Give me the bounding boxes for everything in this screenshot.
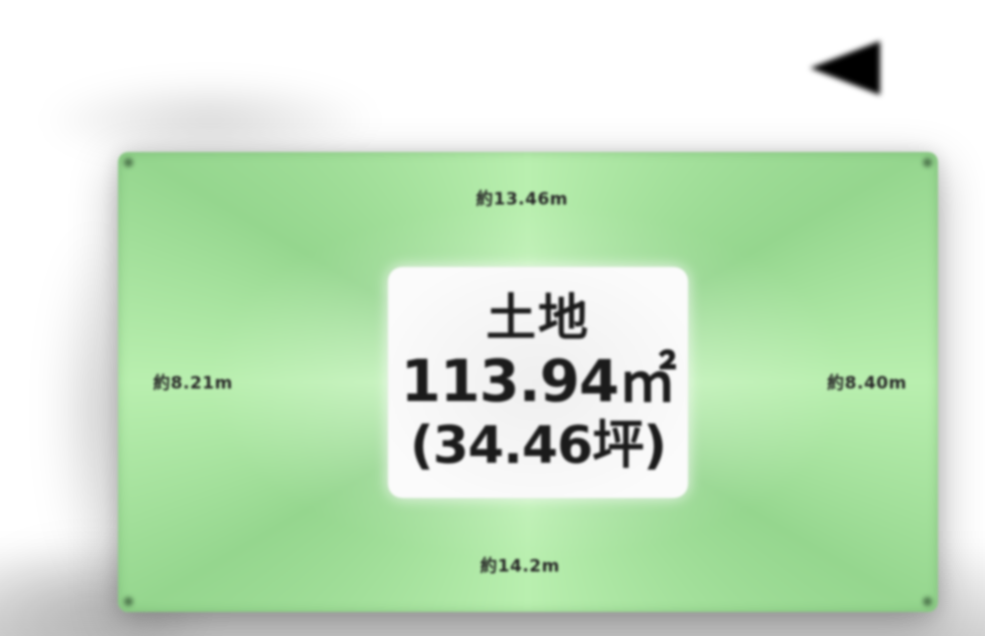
land-plot: 約13.46m 約14.2m 約8.21m 約8.40m 土地 113.94㎡ … (118, 152, 938, 612)
land-area-tsubo: (34.46坪) (410, 415, 666, 477)
dimension-label-left: 約8.21m (153, 369, 233, 394)
plot-corner-marker (124, 597, 133, 606)
floorplan-viewer: 約13.46m 約14.2m 約8.21m 約8.40m 土地 113.94㎡ … (0, 0, 985, 636)
dimension-label-top: 約13.46m (476, 185, 568, 210)
dimension-label-right: 約8.40m (827, 369, 907, 394)
land-info-box: 土地 113.94㎡ (34.46坪) (388, 267, 688, 498)
land-area-sqm: 113.94㎡ (401, 348, 676, 415)
plot-corner-marker (923, 597, 932, 606)
plot-corner-marker (923, 158, 932, 167)
land-title: 土地 (486, 288, 590, 348)
plot-corner-marker (124, 158, 133, 167)
dimension-label-bottom: 約14.2m (480, 552, 560, 577)
prev-arrow-icon[interactable] (806, 38, 884, 98)
